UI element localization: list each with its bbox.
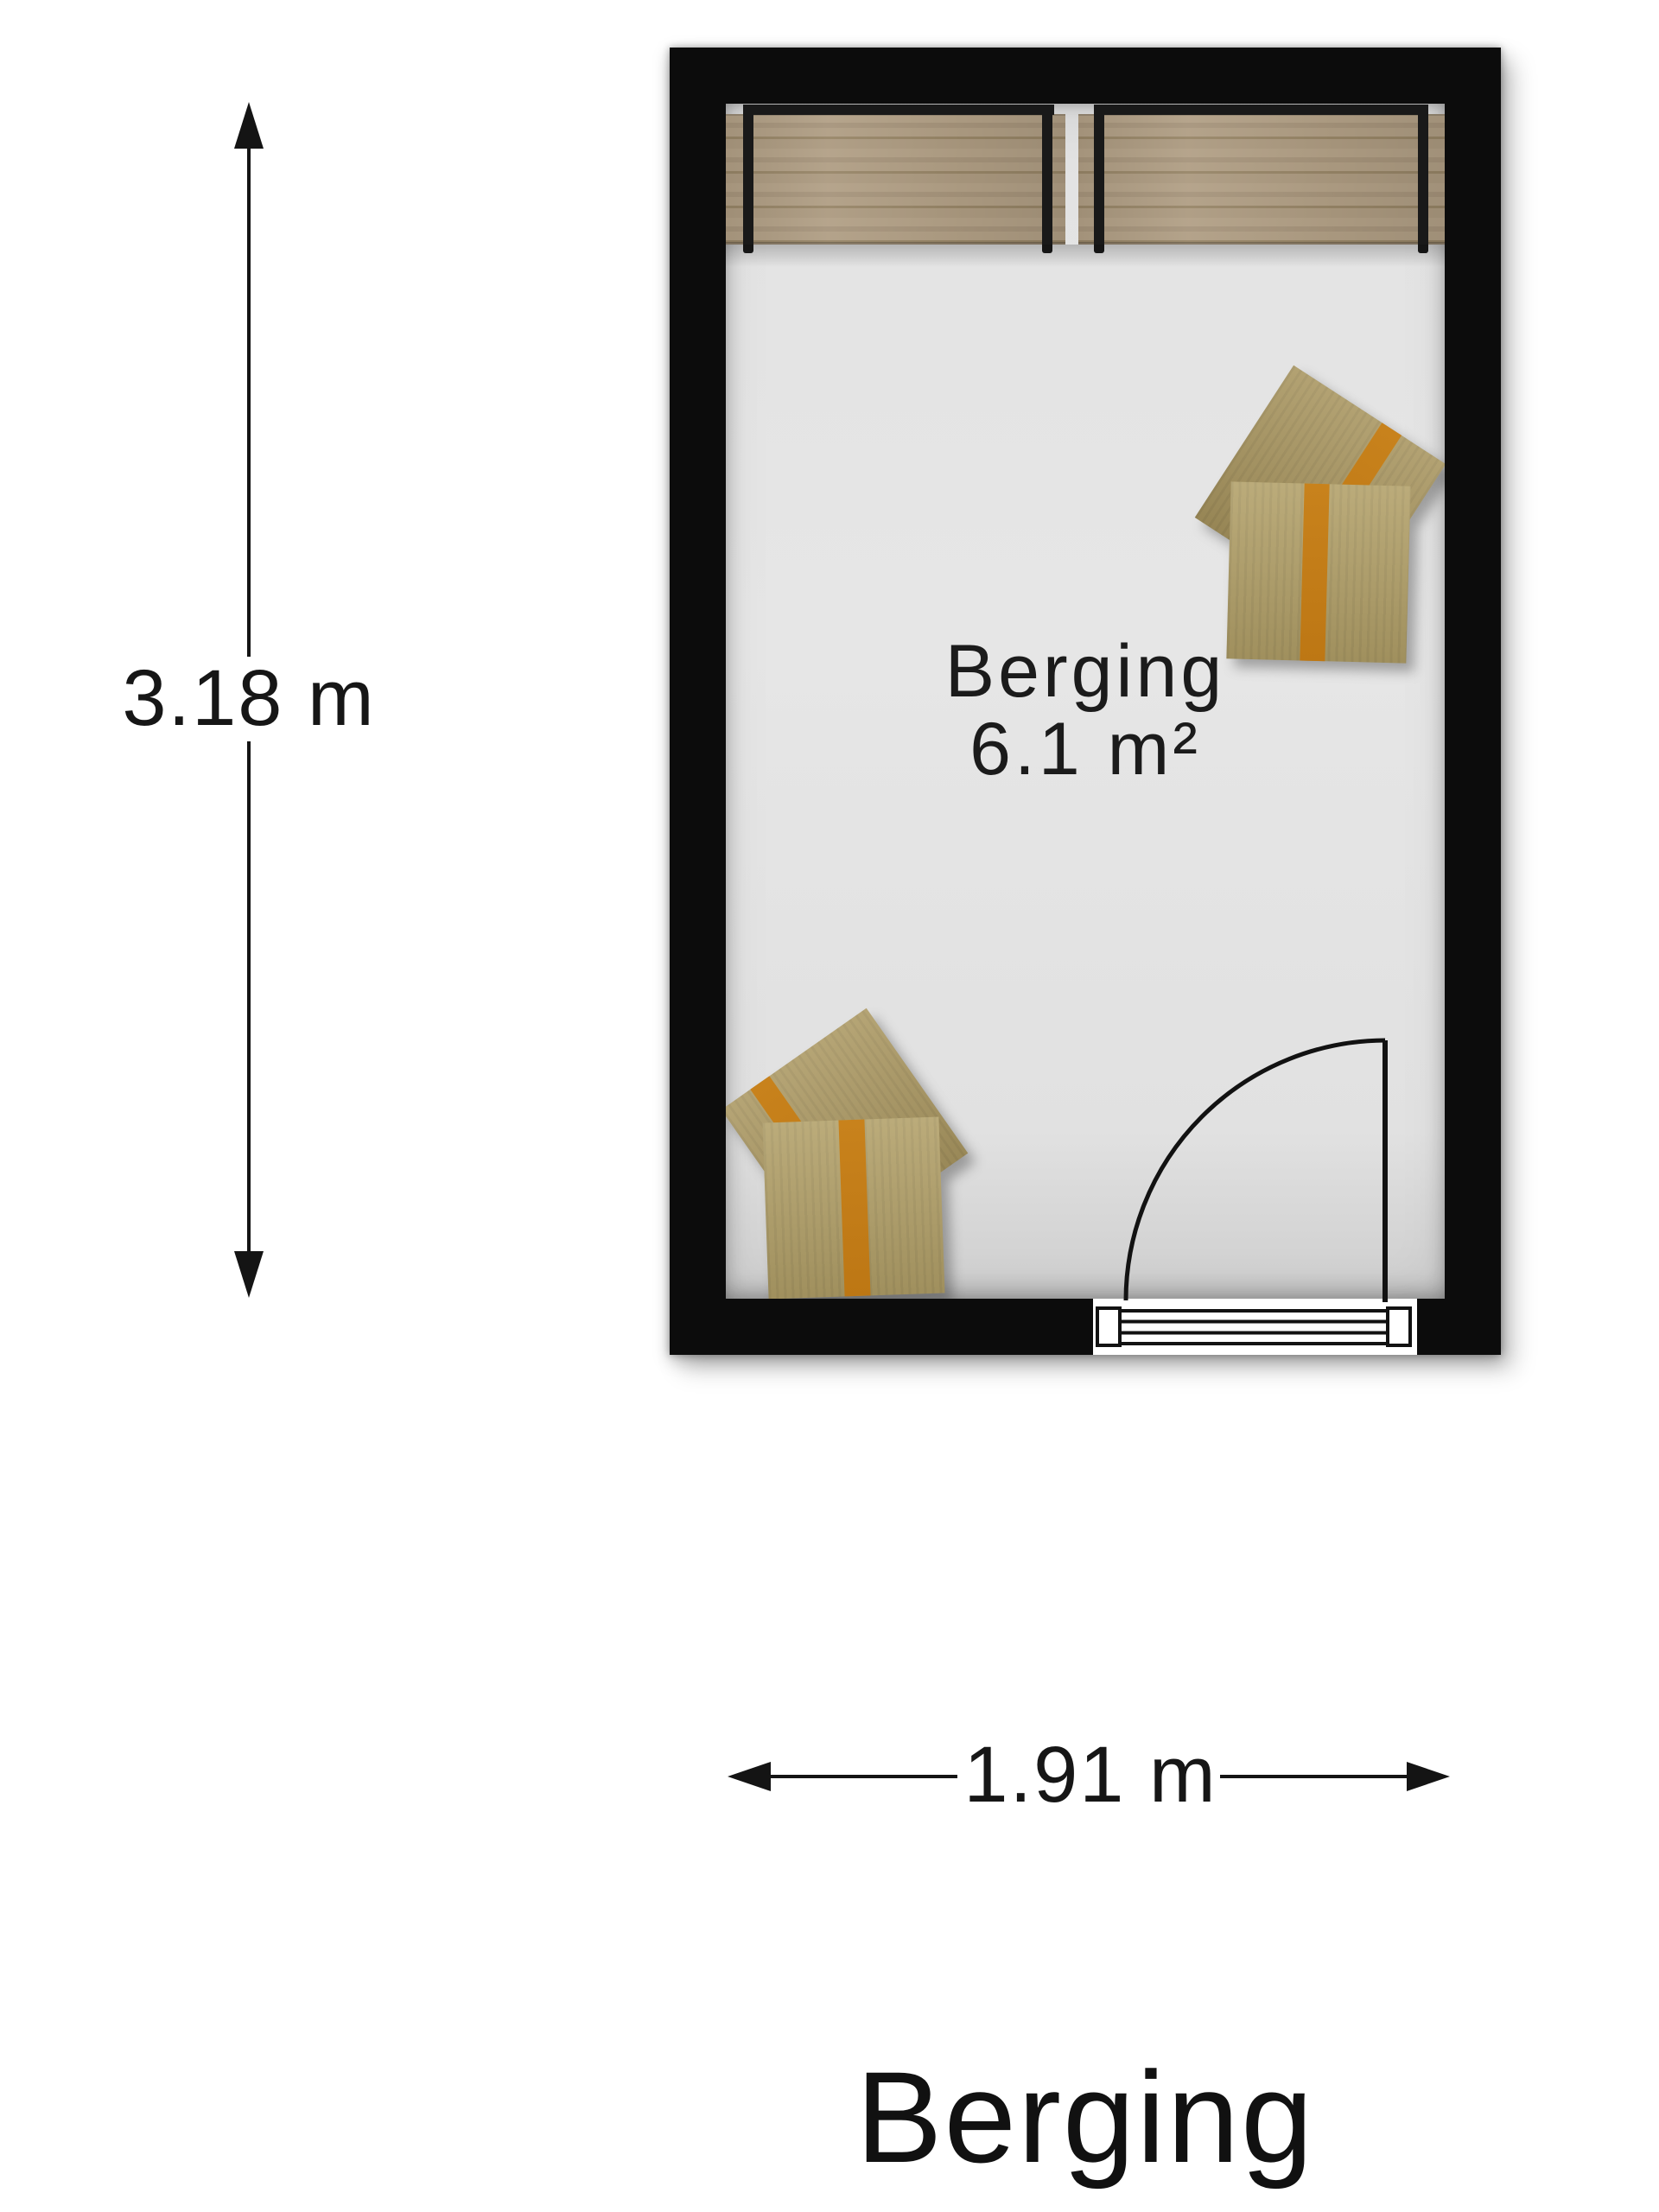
horizontal-dimension-line-left — [767, 1775, 957, 1778]
dimension-arrow-left-icon — [728, 1762, 771, 1791]
horizontal-dimension-line-right — [1220, 1775, 1410, 1778]
plan-title: Berging — [670, 2043, 1501, 2192]
dimension-arrow-right-icon — [1407, 1762, 1450, 1791]
height-dimension-label: 3.18 m — [83, 655, 415, 741]
vertical-dimension-line-upper — [247, 147, 251, 657]
dimension-arrow-down-icon — [234, 1251, 264, 1298]
dimension-arrow-up-icon — [234, 102, 264, 149]
width-dimension-label: 1.91 m — [935, 1730, 1246, 1820]
room-berging-plan: Berging 6.1 m² — [670, 48, 1501, 1355]
floorplan-canvas: 3.18 m — [0, 0, 1659, 2212]
vertical-dimension-line-lower — [247, 741, 251, 1253]
door-swing-icon — [670, 48, 1501, 1355]
